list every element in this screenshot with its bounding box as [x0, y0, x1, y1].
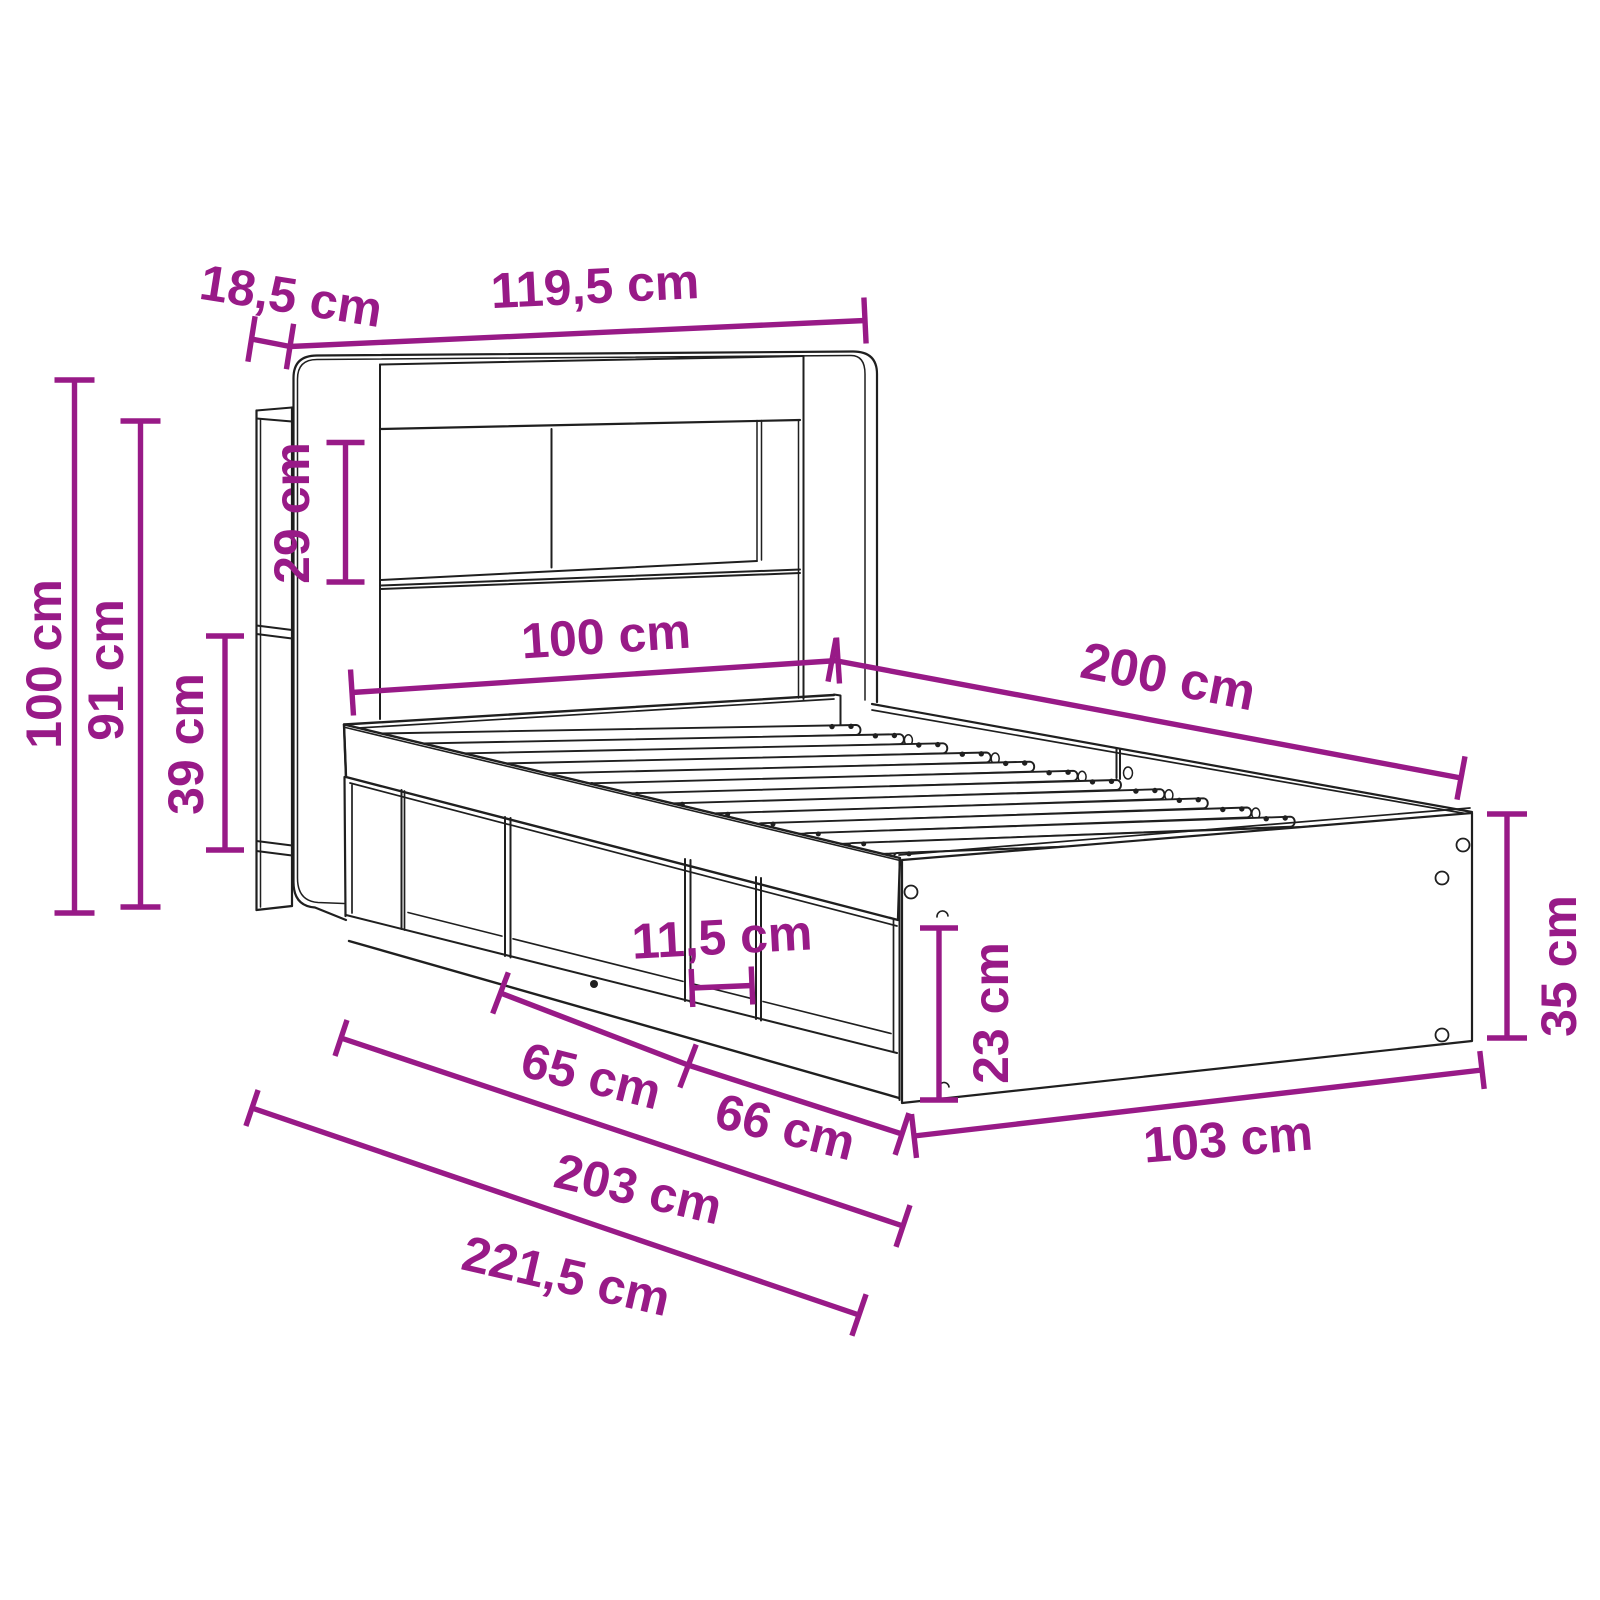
svg-text:23 cm: 23 cm [963, 942, 1019, 1084]
svg-text:29 cm: 29 cm [264, 442, 320, 584]
svg-text:91 cm: 91 cm [78, 599, 134, 741]
svg-text:100 cm: 100 cm [16, 579, 72, 749]
svg-text:11,5 cm: 11,5 cm [630, 904, 813, 969]
svg-text:100 cm: 100 cm [519, 603, 692, 670]
svg-text:119,5 cm: 119,5 cm [489, 253, 700, 319]
svg-text:35 cm: 35 cm [1531, 895, 1587, 1037]
svg-text:39 cm: 39 cm [158, 673, 214, 815]
